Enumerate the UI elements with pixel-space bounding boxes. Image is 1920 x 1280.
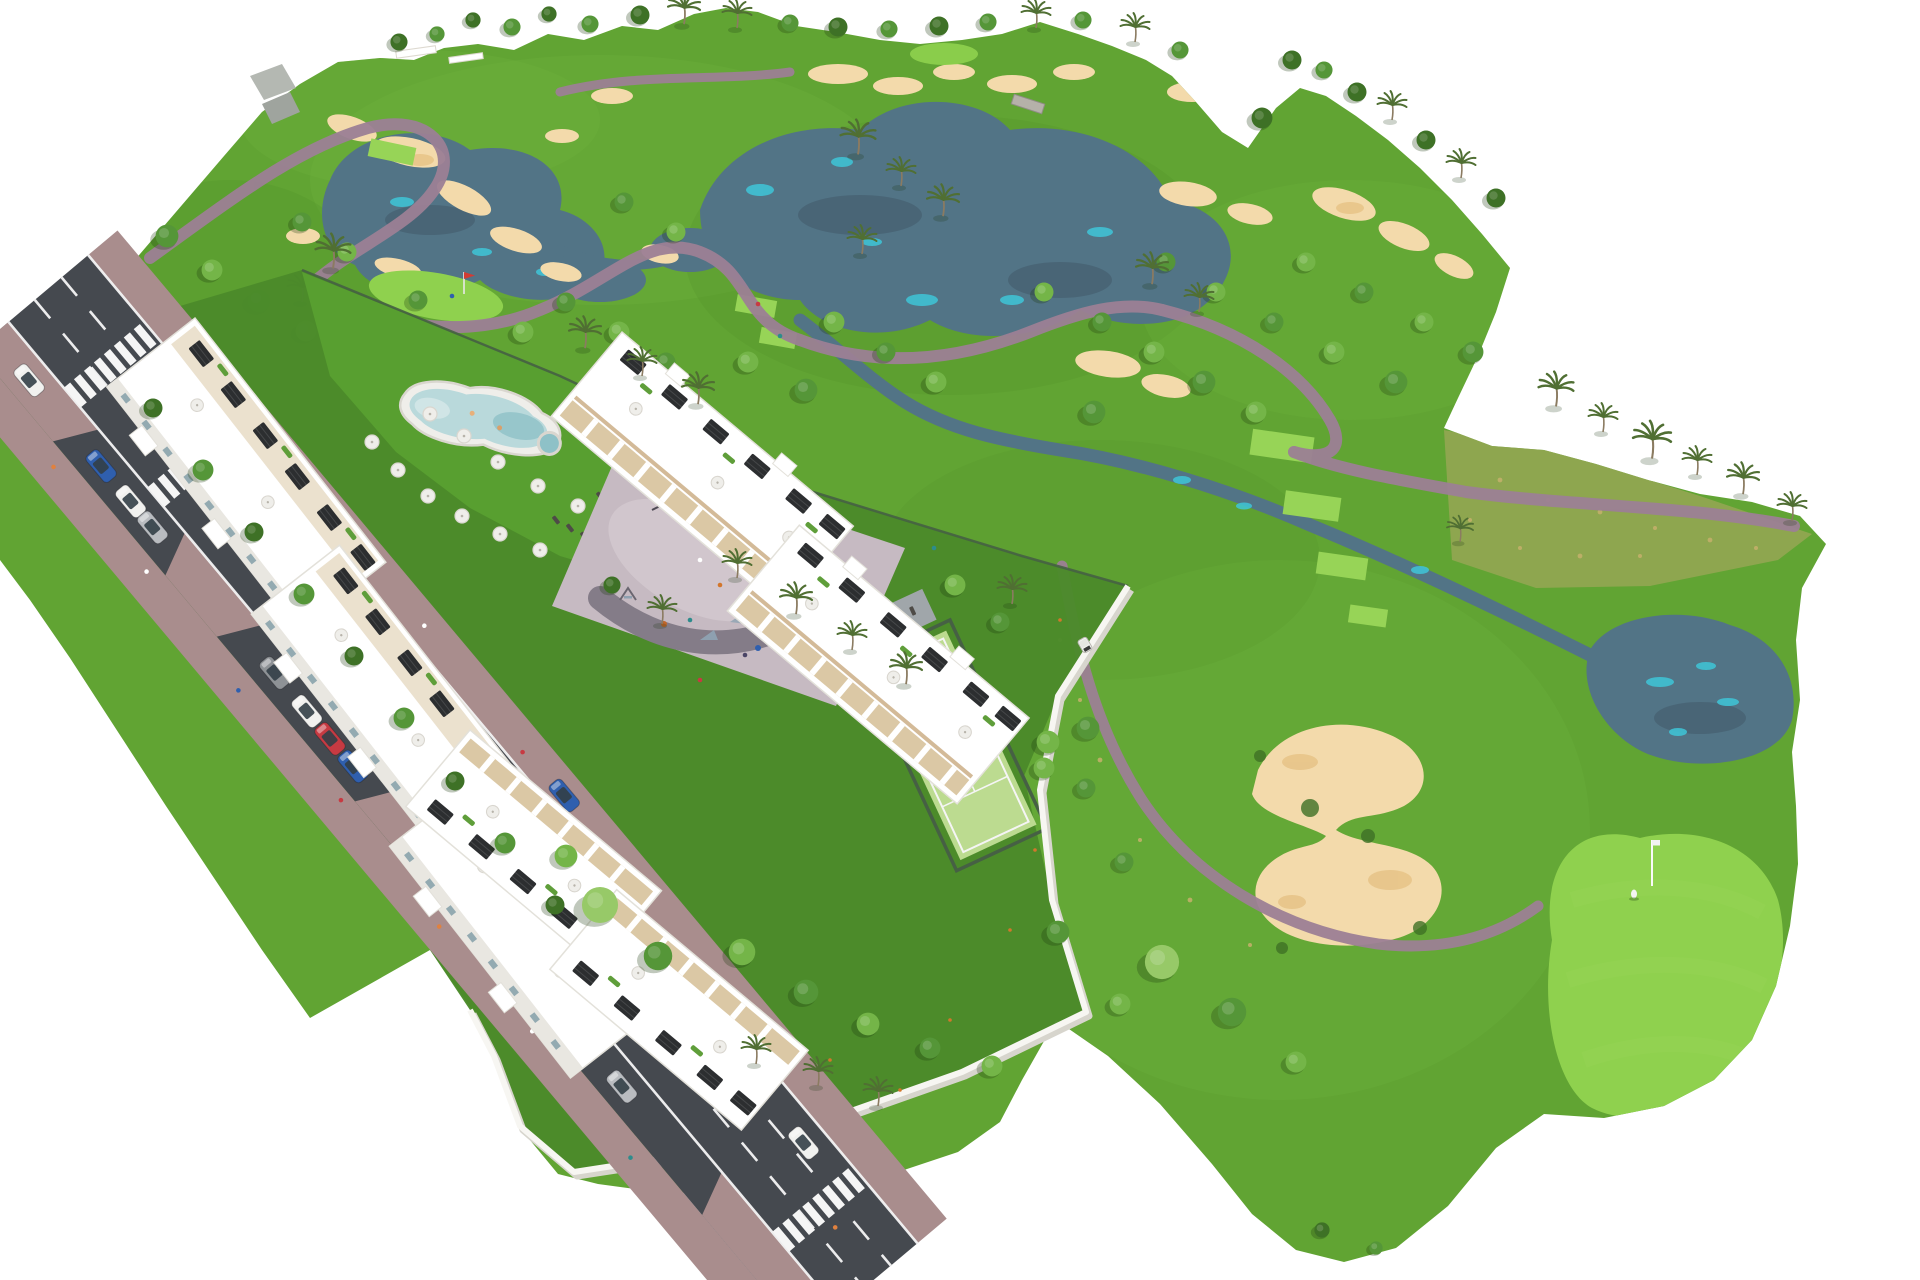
- golfer: [756, 302, 761, 307]
- parasol: [365, 435, 379, 449]
- tree: [577, 15, 598, 34]
- person: [658, 428, 663, 433]
- tree: [386, 33, 407, 52]
- parasol: [455, 509, 469, 523]
- palm-tree: [1633, 421, 1671, 465]
- person: [743, 653, 748, 658]
- parasol: [571, 499, 585, 513]
- palm-tree: [1727, 462, 1759, 499]
- person: [688, 618, 693, 623]
- parasol: [493, 527, 507, 541]
- tree: [1343, 83, 1367, 104]
- tree: [538, 6, 557, 23]
- person: [698, 678, 703, 683]
- palm-tree: [1378, 91, 1407, 125]
- tree: [499, 18, 520, 37]
- golfer: [450, 294, 455, 299]
- tree: [1278, 51, 1302, 72]
- palm-tree: [1683, 446, 1712, 480]
- tree: [1482, 189, 1506, 210]
- tree: [1070, 11, 1091, 30]
- parasol: [391, 463, 405, 477]
- person: [932, 546, 937, 551]
- person: [698, 558, 703, 563]
- palm-tree: [1539, 372, 1574, 413]
- parasol: [423, 407, 437, 421]
- tree: [626, 6, 650, 27]
- golf-resort-render: Aerial 3D render — golf resort residenti…: [0, 0, 1920, 1280]
- tree: [1412, 131, 1436, 152]
- palm-tree: [1589, 403, 1618, 437]
- parasol: [421, 489, 435, 503]
- tree: [426, 26, 445, 43]
- tree: [876, 20, 897, 39]
- tree: [975, 13, 996, 32]
- aerial-render-canvas: Aerial 3D render — golf resort residenti…: [0, 0, 1920, 1280]
- palm-tree: [1121, 13, 1150, 47]
- tree: [1167, 41, 1188, 60]
- person: [718, 583, 723, 588]
- parasol: [531, 479, 545, 493]
- golfer: [778, 334, 783, 339]
- parasol: [491, 455, 505, 469]
- tree: [925, 17, 949, 38]
- tree: [462, 12, 481, 29]
- golfer: [1631, 890, 1637, 899]
- tree: [1311, 61, 1332, 80]
- palm-tree: [1447, 149, 1476, 183]
- parasol: [457, 429, 471, 443]
- parasol: [533, 543, 547, 557]
